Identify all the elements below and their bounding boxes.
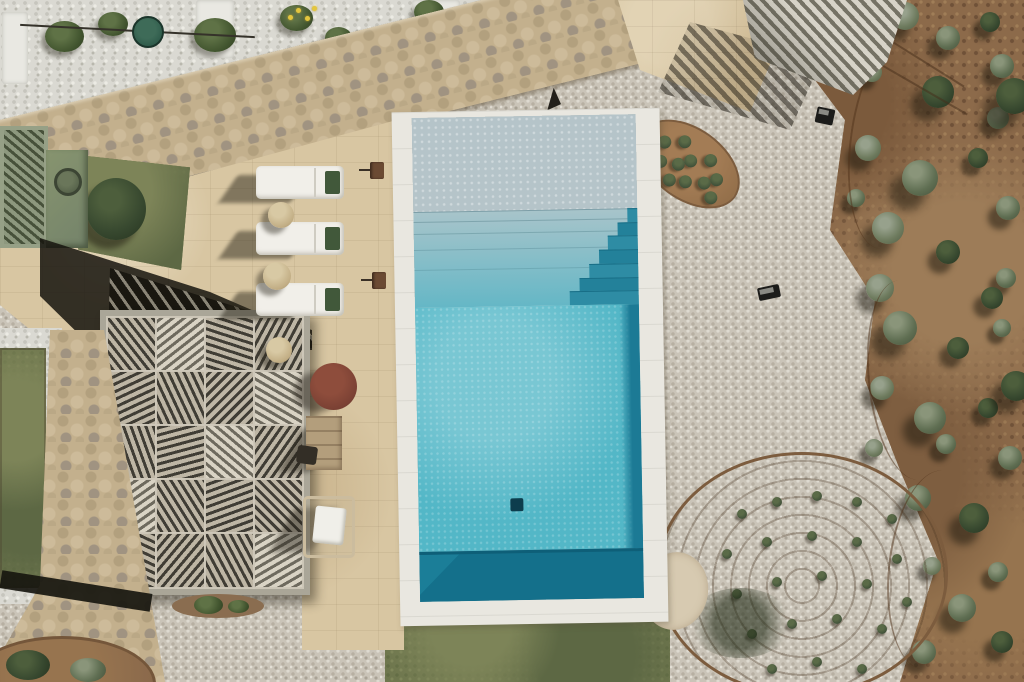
pool-step xyxy=(599,249,639,263)
yellow-flower xyxy=(288,15,293,20)
landscape-light xyxy=(815,106,836,125)
pergola-slat-patch xyxy=(107,317,156,371)
green-roof xyxy=(46,150,88,248)
sapling xyxy=(702,189,720,207)
wall-shadow-wedge xyxy=(540,88,561,111)
young-plant xyxy=(767,664,777,674)
aerial-photo-villa-pool xyxy=(0,0,1024,682)
roof-vent xyxy=(54,168,82,196)
pergola-slat-patch xyxy=(156,425,205,479)
pergola-slat-patch xyxy=(156,371,205,425)
corner-grass-tuft xyxy=(70,658,106,682)
pergola-slat-patch xyxy=(156,479,205,533)
pool-stairs xyxy=(568,208,639,305)
young-plant xyxy=(737,509,747,519)
young-plant xyxy=(877,624,887,634)
young-plant xyxy=(762,537,772,547)
young-plant xyxy=(852,537,862,547)
pergola-slat-patch xyxy=(205,371,254,425)
green-pergola-canopy xyxy=(0,126,48,248)
young-plant xyxy=(832,614,842,624)
pergola-slat-patch xyxy=(205,479,254,533)
young-plant xyxy=(807,531,817,541)
deep-water xyxy=(415,304,643,552)
pool-step xyxy=(589,263,639,278)
young-plant xyxy=(862,579,872,589)
sapling xyxy=(676,133,694,151)
young-plant xyxy=(902,597,912,607)
stepping-stone xyxy=(2,12,28,84)
shrub xyxy=(98,12,128,36)
swimming-pool xyxy=(392,108,669,627)
pool-step xyxy=(627,208,637,222)
sapling xyxy=(702,151,720,169)
pergola-slat-patch xyxy=(254,317,303,371)
yellow-flower xyxy=(305,16,310,21)
pool-step xyxy=(618,222,638,236)
terracotta-firepit xyxy=(310,363,357,410)
young-plant xyxy=(817,571,827,581)
pool-step xyxy=(608,236,638,250)
pergola-slat-patch xyxy=(156,317,205,371)
pool-bench xyxy=(419,548,644,602)
yellow-flower xyxy=(312,6,317,11)
corner-grass-tuft xyxy=(6,650,50,680)
sapling xyxy=(676,173,694,191)
olive-tree xyxy=(865,439,883,457)
lounge-chair-cushion xyxy=(312,505,347,545)
sapling xyxy=(660,171,678,189)
deep-edge-band xyxy=(619,304,643,548)
hose-reel xyxy=(132,16,164,48)
bush-topleft xyxy=(86,178,146,240)
landscape-light-top xyxy=(759,287,774,295)
young-plant xyxy=(887,514,897,524)
young-plant xyxy=(722,549,732,559)
pool-step xyxy=(570,290,639,305)
yellow-flower xyxy=(296,8,301,13)
pergola-slat-patch xyxy=(205,425,254,479)
young-plant xyxy=(812,491,822,501)
landscape-light xyxy=(757,284,781,301)
pool-water xyxy=(412,114,644,602)
soil-patch-below-pergola xyxy=(172,594,264,618)
young-plant xyxy=(857,664,867,674)
young-plant xyxy=(772,497,782,507)
young-plant xyxy=(852,497,862,507)
bench-corner-highlight xyxy=(419,554,460,595)
landscape-light-top xyxy=(818,109,829,116)
dark-chair xyxy=(296,445,318,466)
pergola-slat-patch xyxy=(156,533,205,588)
tanning-shelf xyxy=(412,114,638,212)
young-plant xyxy=(812,657,822,667)
young-plant xyxy=(892,554,902,564)
lawn-left-strip xyxy=(0,348,46,588)
young-plant xyxy=(772,577,782,587)
pergola-slat-patch xyxy=(205,317,254,371)
pergola-slat-patch xyxy=(205,533,254,588)
pool-step xyxy=(579,277,638,292)
pool-drain xyxy=(510,498,523,511)
